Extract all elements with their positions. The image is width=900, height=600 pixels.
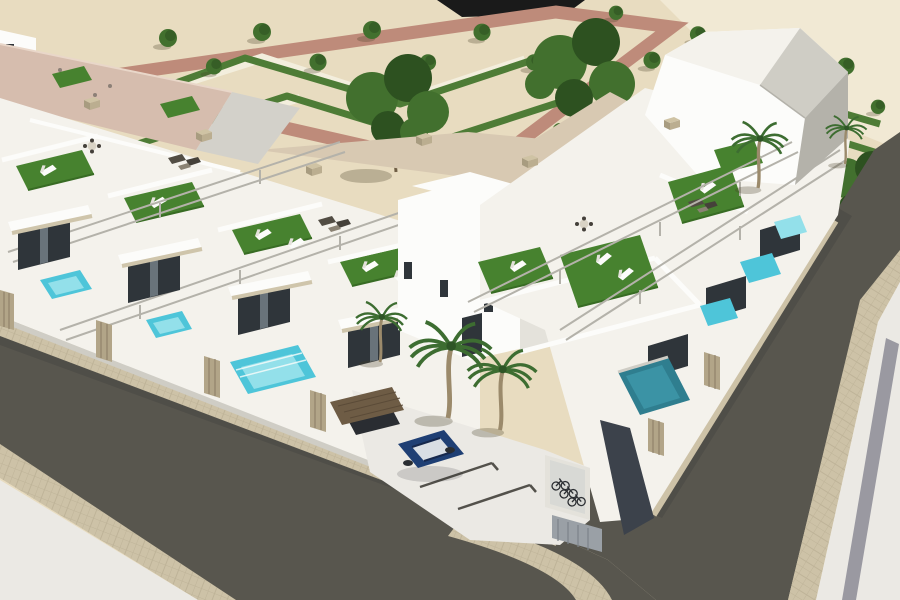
slatted-fence: [704, 352, 720, 390]
slatted-fence: [0, 290, 14, 330]
slatted-fence: [310, 390, 326, 432]
architectural-render: [0, 0, 900, 600]
slatted-fence: [648, 418, 664, 456]
glass-reflection: [260, 290, 268, 329]
slatted-fence: [204, 356, 220, 398]
glass-reflection: [40, 225, 48, 264]
glass-reflection: [370, 323, 378, 362]
glass-reflection: [150, 258, 158, 297]
slit-window: [440, 280, 448, 297]
slatted-fence: [96, 320, 112, 362]
slit-window: [404, 262, 412, 279]
